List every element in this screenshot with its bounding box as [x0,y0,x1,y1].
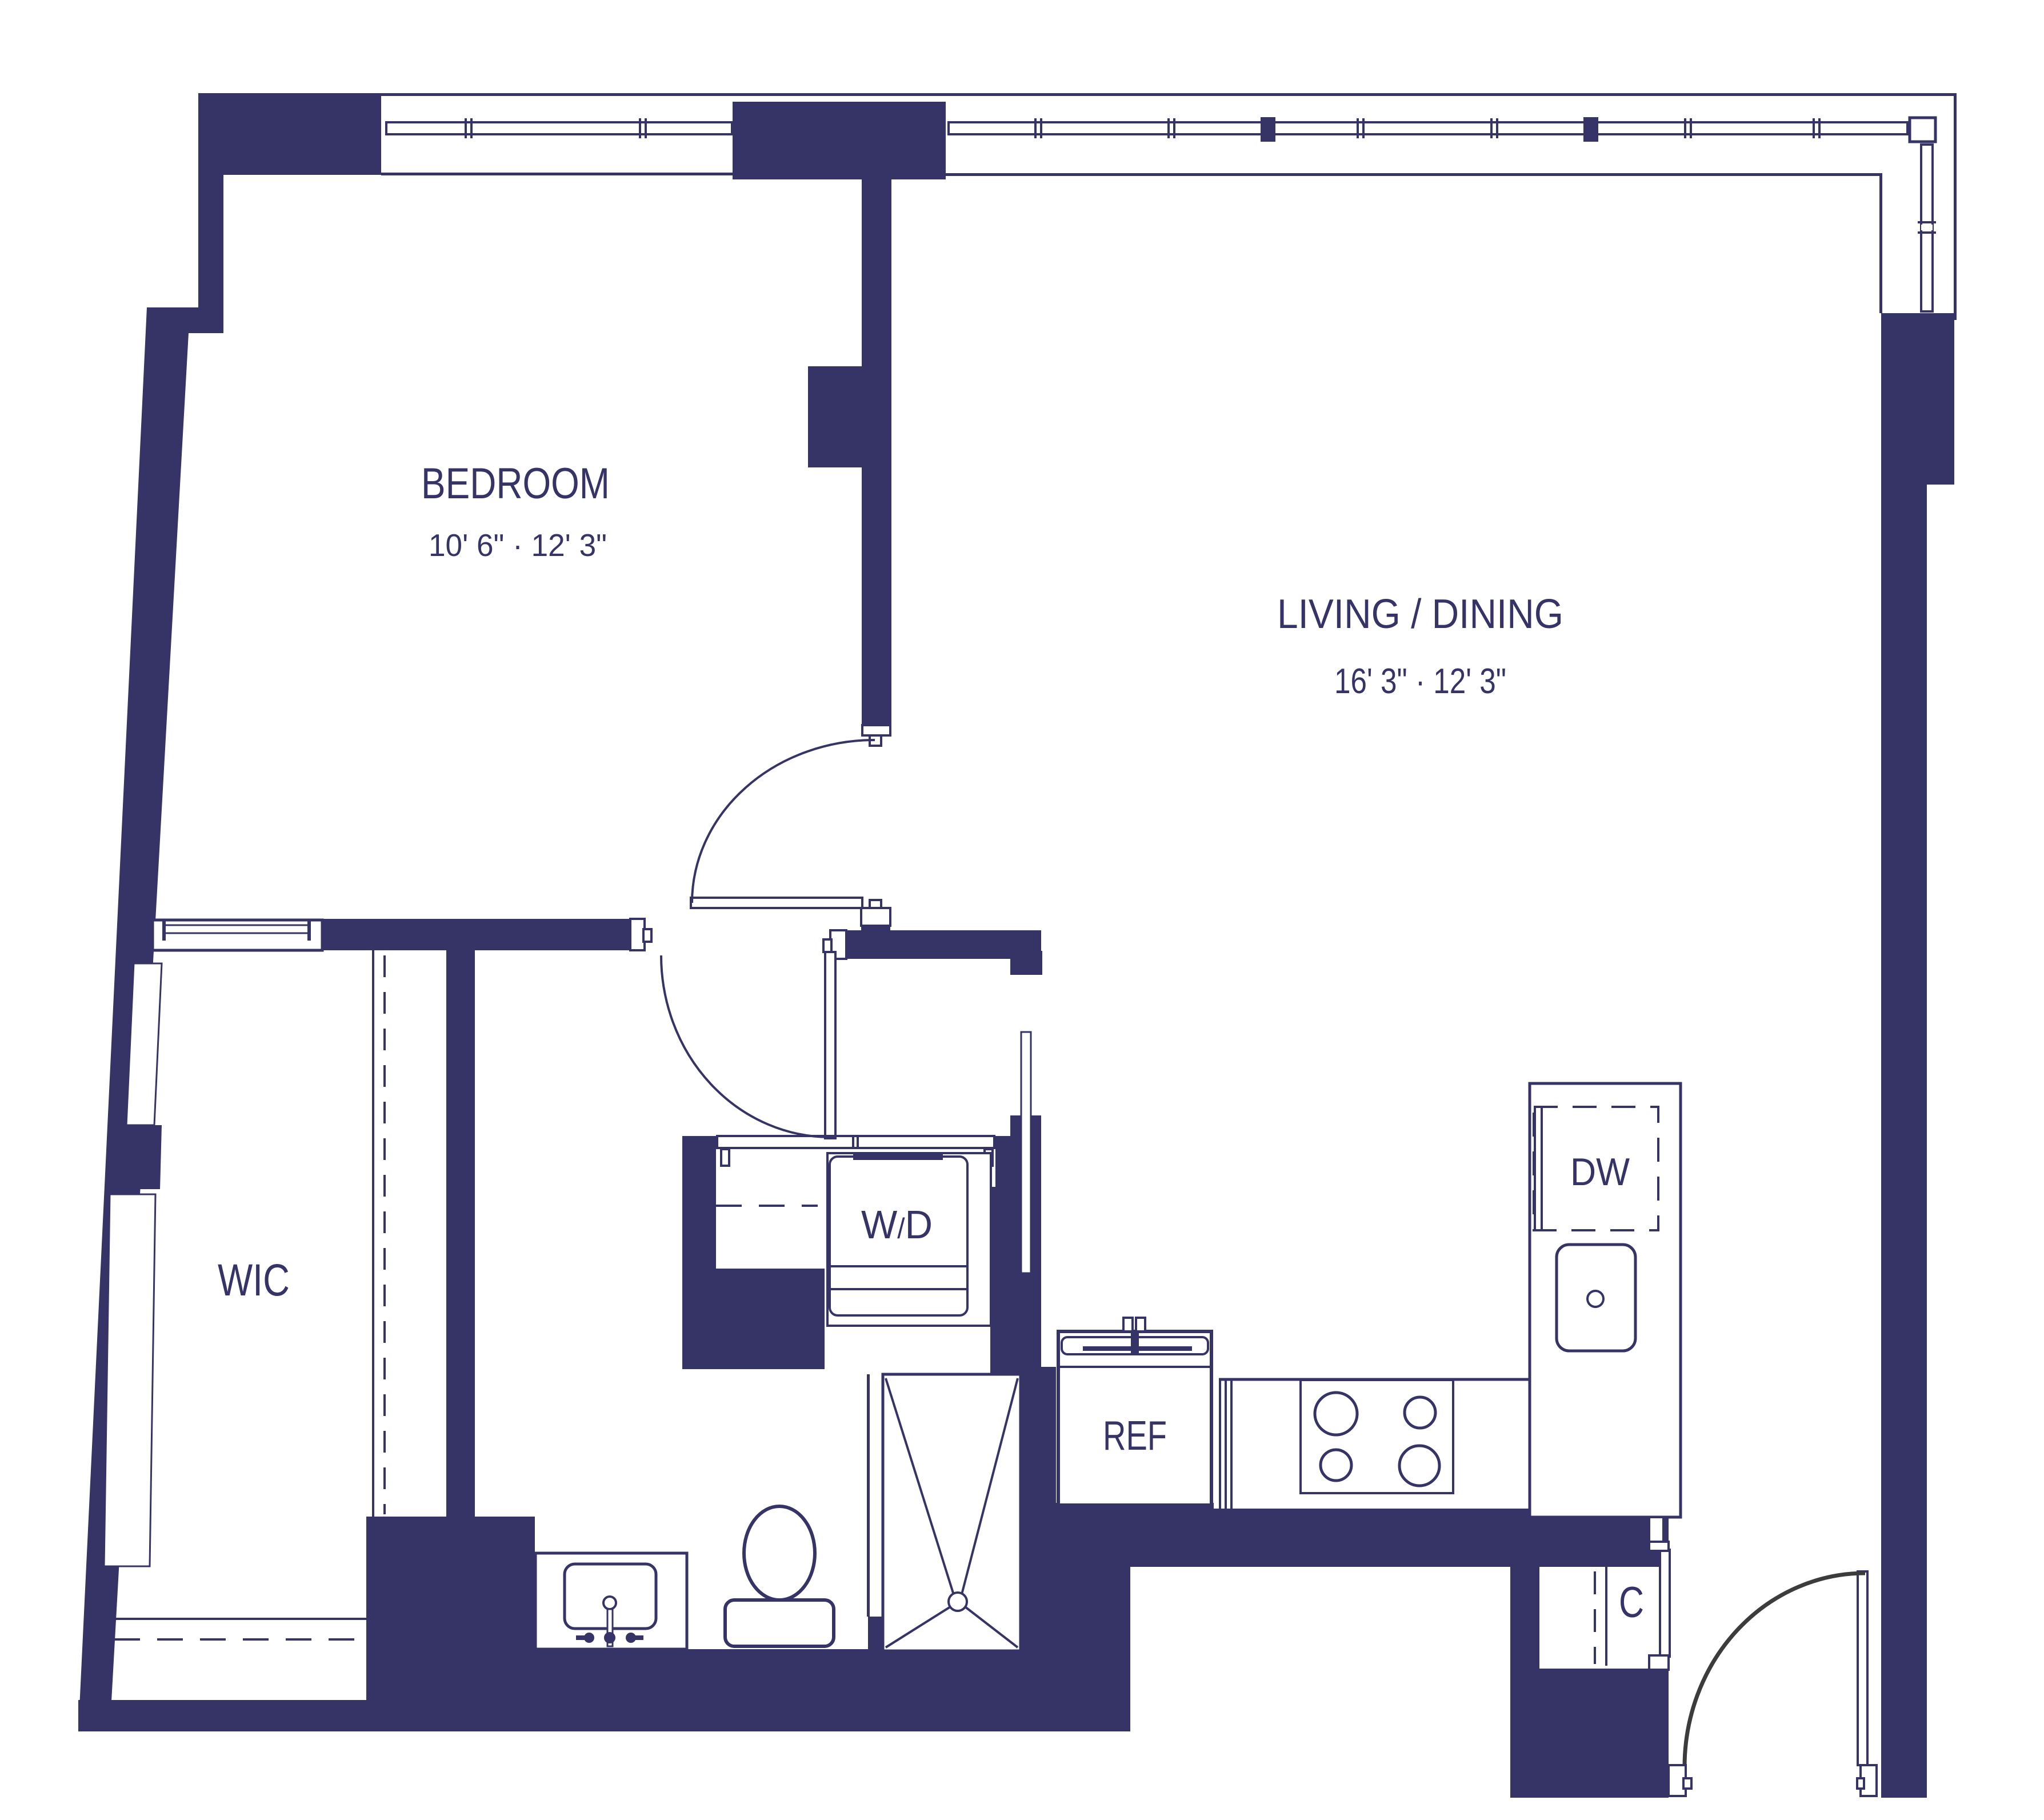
svg-text:LIVING / DINING: LIVING / DINING [1277,591,1563,637]
svg-text:10' 6" · 12' 3": 10' 6" · 12' 3" [429,527,607,563]
svg-text:WIC: WIC [218,1254,290,1305]
svg-text:C: C [1619,1578,1644,1627]
svg-text:REF: REF [1103,1413,1167,1459]
svg-text:16' 3" · 12' 3": 16' 3" · 12' 3" [1334,662,1506,701]
svg-text:BEDROOM: BEDROOM [421,459,610,508]
svg-text:DW: DW [1570,1150,1630,1194]
svg-text:W/D: W/D [861,1202,933,1247]
